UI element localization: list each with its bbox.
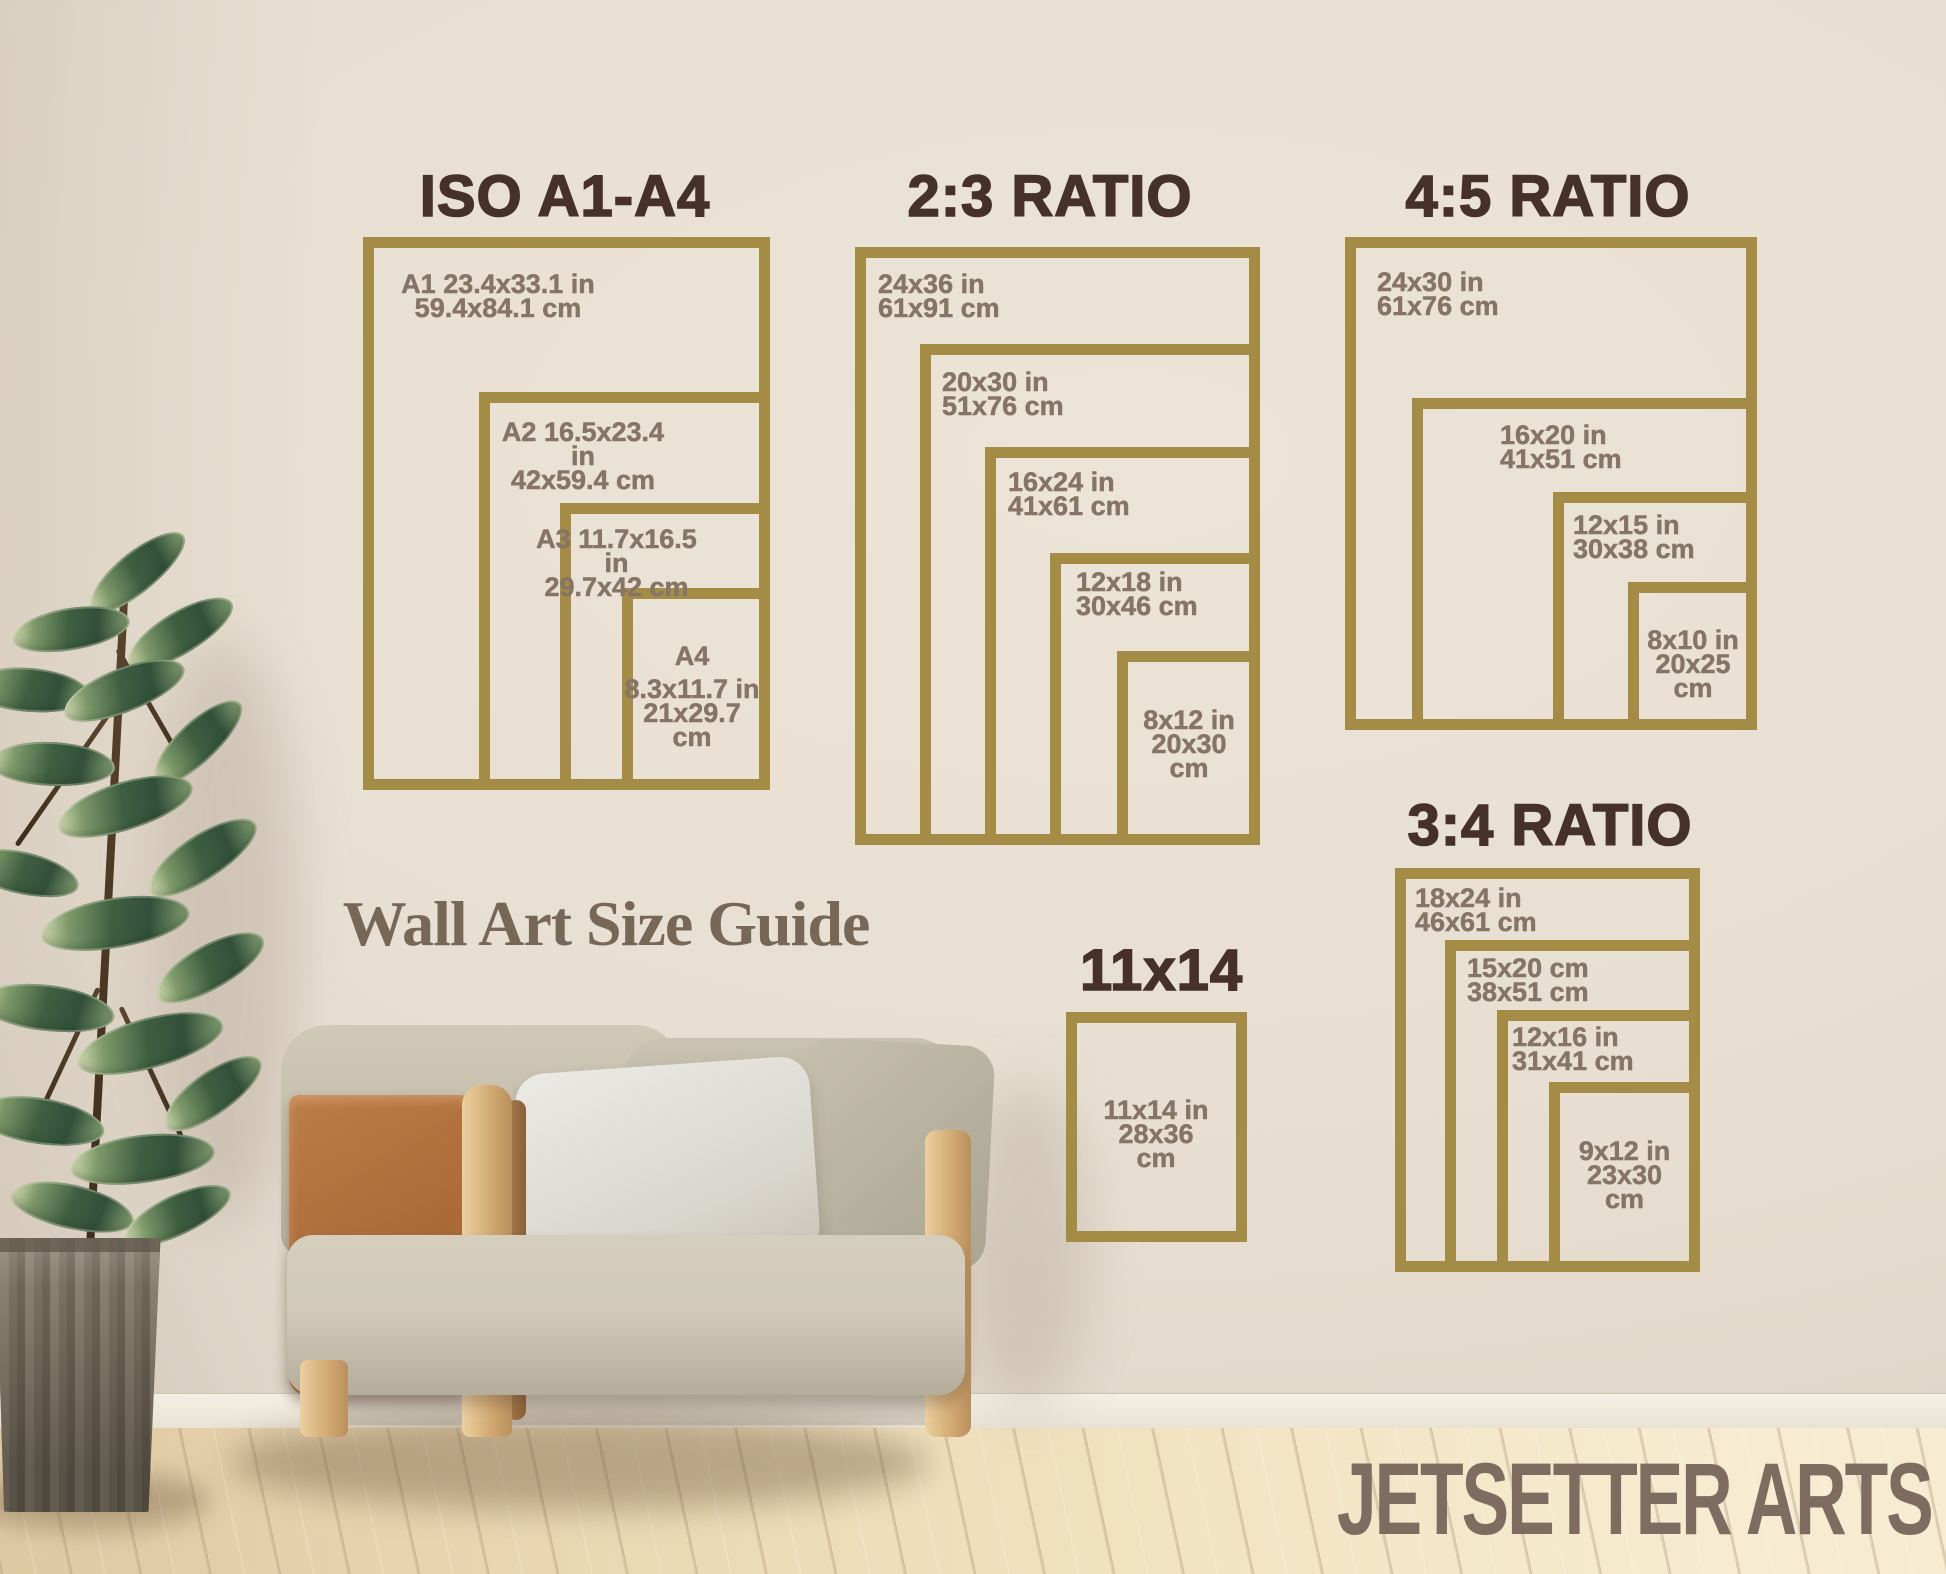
size-label-line: 29.7x42 cm xyxy=(524,575,709,599)
label-12x16: 12x16 in 31x41 cm xyxy=(1512,1025,1634,1073)
iso-label-a4: A4 8.3x11.7 in 21x29.7 cm xyxy=(622,644,762,749)
size-label-line: cm xyxy=(1562,1187,1687,1211)
label-16x24: 16x24 in 41x61 cm xyxy=(1008,470,1130,518)
size-label-line: 51x76 cm xyxy=(942,394,1064,418)
size-label-line: 30x38 cm xyxy=(1573,537,1695,561)
baseboard xyxy=(0,1393,1946,1429)
label-24x30: 24x30 in 61x76 cm xyxy=(1377,270,1499,318)
chair-seat-cushion xyxy=(287,1235,965,1395)
section-3-4-title: 3:4 RATIO xyxy=(1390,797,1710,855)
section-11x14-title: 11x14 xyxy=(1080,942,1230,1000)
label-24x36: 24x36 in 61x91 cm xyxy=(878,272,1000,320)
size-label-line: cm xyxy=(1633,676,1753,700)
size-label-line: A3 11.7x16.5 in xyxy=(524,527,709,575)
size-label-line: 30x46 cm xyxy=(1076,594,1198,618)
size-label-line: A2 16.5x23.4 in xyxy=(488,420,678,468)
size-label-line: 42x59.4 cm xyxy=(488,468,678,492)
label-16x20: 16x20 in 41x51 cm xyxy=(1500,423,1622,471)
size-label-line: A4 xyxy=(622,644,762,668)
woven-basket-planter xyxy=(0,1238,164,1512)
chair-leg-left xyxy=(300,1360,348,1437)
brand-watermark: JETSETTER ARTS xyxy=(1337,1448,1932,1550)
size-label-line: 59.4x84.1 cm xyxy=(383,296,613,320)
size-label-line: cm xyxy=(622,725,762,749)
label-12x15: 12x15 in 30x38 cm xyxy=(1573,513,1695,561)
label-11x14: 11x14 in 28x36 cm xyxy=(1088,1098,1224,1170)
label-15x20: 15x20 cm 38x51 cm xyxy=(1467,956,1589,1004)
label-9x12: 9x12 in 23x30 cm xyxy=(1562,1139,1687,1211)
size-label-line: 31x41 cm xyxy=(1512,1049,1634,1073)
size-label-line: 46x61 cm xyxy=(1415,910,1537,934)
section-4-5-title: 4:5 RATIO xyxy=(1358,168,1738,226)
tagline: Wall Art Size Guide xyxy=(336,892,876,956)
section-iso-title: ISO A1-A4 xyxy=(355,168,775,226)
size-label-line: 61x76 cm xyxy=(1377,294,1499,318)
size-label-line: cm xyxy=(1088,1146,1224,1170)
label-18x24: 18x24 in 46x61 cm xyxy=(1415,886,1537,934)
section-2-3-title: 2:3 RATIO xyxy=(860,168,1240,226)
size-label-line: 41x51 cm xyxy=(1500,447,1622,471)
size-label-line: 61x91 cm xyxy=(878,296,1000,320)
size-label-line: cm xyxy=(1125,756,1253,780)
wall-art-size-guide-scene: ISO A1-A4 A1 23.4x33.1 in 59.4x84.1 cm A… xyxy=(0,0,1946,1574)
label-8x10: 8x10 in 20x25 cm xyxy=(1633,628,1753,700)
size-label-line: 38x51 cm xyxy=(1467,980,1589,1004)
label-8x12: 8x12 in 20x30 cm xyxy=(1125,708,1253,780)
size-label-line: 41x61 cm xyxy=(1008,494,1130,518)
label-20x30: 20x30 in 51x76 cm xyxy=(942,370,1064,418)
iso-label-a3: A3 11.7x16.5 in 29.7x42 cm xyxy=(524,527,709,599)
iso-label-a2: A2 16.5x23.4 in 42x59.4 cm xyxy=(488,420,678,492)
iso-label-a1: A1 23.4x33.1 in 59.4x84.1 cm xyxy=(383,272,613,320)
label-12x18: 12x18 in 30x46 cm xyxy=(1076,570,1198,618)
